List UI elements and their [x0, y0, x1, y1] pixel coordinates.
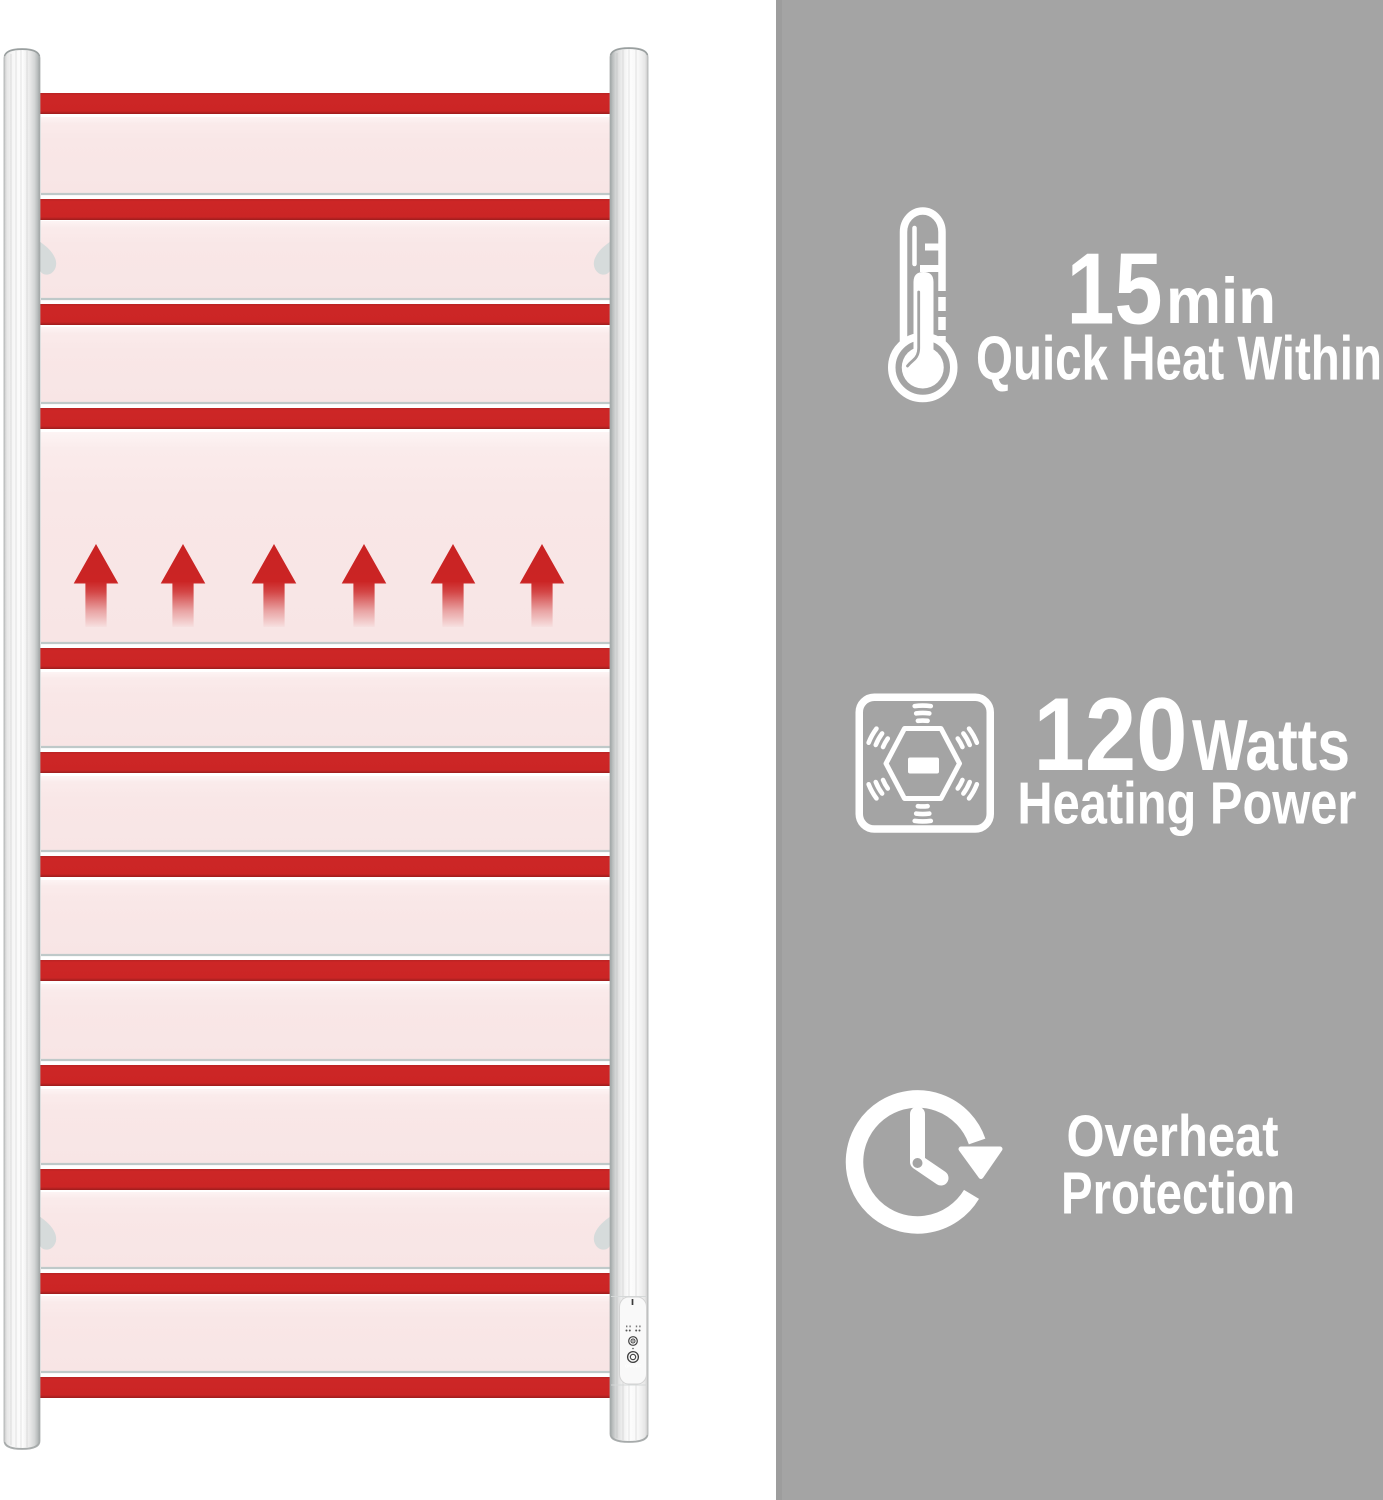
svg-text:Heating Power: Heating Power: [1017, 771, 1356, 837]
svg-text:Quick Heat Within: Quick Heat Within: [976, 325, 1382, 394]
svg-text:ON/OFF: ON/OFF: [625, 1364, 641, 1369]
svg-text:Protection: Protection: [1061, 1161, 1295, 1227]
svg-text:Overheat: Overheat: [1067, 1104, 1279, 1169]
